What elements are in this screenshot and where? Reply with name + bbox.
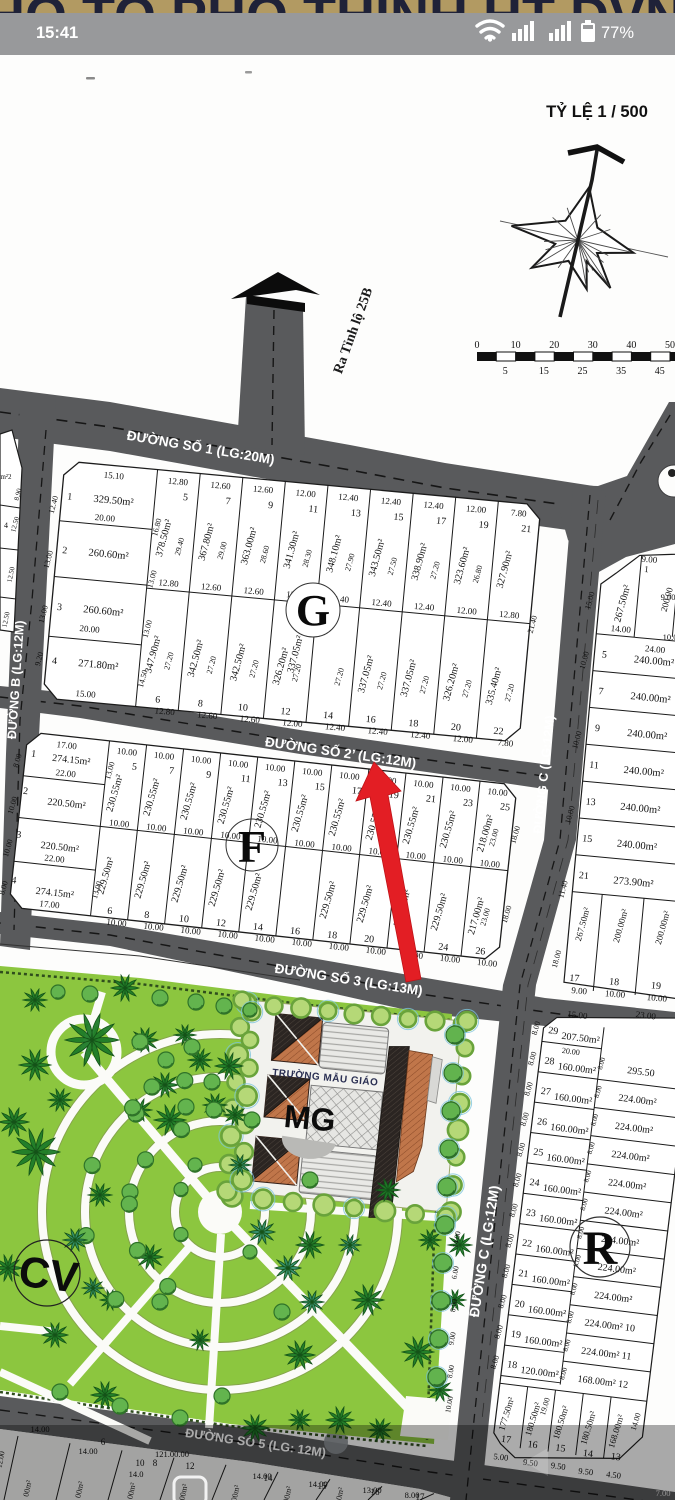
svg-text:21: 21 <box>425 793 436 805</box>
svg-text:12.80: 12.80 <box>158 577 180 589</box>
svg-text:12.60: 12.60 <box>197 709 219 721</box>
svg-text:3: 3 <box>56 602 62 613</box>
svg-text:13: 13 <box>585 796 596 808</box>
svg-text:12.40: 12.40 <box>380 495 402 507</box>
svg-text:12.60: 12.60 <box>253 484 275 496</box>
svg-text:23: 23 <box>462 797 473 809</box>
svg-text:18: 18 <box>507 1359 518 1371</box>
svg-text:26: 26 <box>475 946 486 958</box>
svg-text:12.40: 12.40 <box>338 491 360 503</box>
svg-text:12.00: 12.00 <box>466 503 488 515</box>
svg-text:10.0: 10.0 <box>663 632 675 642</box>
svg-text:20: 20 <box>514 1298 525 1310</box>
svg-text:7.80: 7.80 <box>510 507 527 518</box>
svg-text:16: 16 <box>289 925 300 937</box>
svg-text:12.00: 12.00 <box>295 487 317 499</box>
svg-text:12.40: 12.40 <box>371 597 393 609</box>
svg-text:12.60: 12.60 <box>201 581 223 593</box>
svg-text:6: 6 <box>155 694 161 705</box>
svg-text:10: 10 <box>511 340 521 351</box>
svg-text:12.60: 12.60 <box>239 713 261 725</box>
svg-text:10.00: 10.00 <box>646 992 668 1004</box>
svg-text:20: 20 <box>450 722 461 734</box>
svg-text:11: 11 <box>589 760 600 772</box>
svg-text:15:41: 15:41 <box>36 24 78 42</box>
svg-text:12.00: 12.00 <box>452 733 474 745</box>
svg-text:11: 11 <box>240 773 251 785</box>
svg-text:12: 12 <box>280 706 291 718</box>
svg-text:4: 4 <box>51 656 57 667</box>
svg-text:9.00: 9.00 <box>661 592 675 602</box>
svg-text:4: 4 <box>4 521 8 530</box>
svg-text:21: 21 <box>578 870 589 882</box>
svg-text:17: 17 <box>569 973 580 985</box>
svg-text:25: 25 <box>499 801 510 813</box>
svg-text:15: 15 <box>582 833 593 845</box>
svg-text:5: 5 <box>183 492 189 503</box>
svg-text:22: 22 <box>521 1238 532 1250</box>
svg-text:12.80: 12.80 <box>167 476 189 488</box>
svg-text:20: 20 <box>549 340 559 351</box>
svg-text:12.00: 12.00 <box>282 717 304 729</box>
svg-text:19: 19 <box>650 980 661 992</box>
svg-text:24: 24 <box>529 1177 540 1189</box>
svg-text:2: 2 <box>62 545 68 556</box>
svg-text:9.00: 9.00 <box>571 985 588 996</box>
svg-text:14.00: 14.00 <box>610 623 632 635</box>
svg-text:CV: CV <box>16 1248 81 1303</box>
svg-text:7: 7 <box>225 496 231 507</box>
svg-text:18: 18 <box>408 718 419 730</box>
svg-text:25: 25 <box>578 366 588 377</box>
svg-text:12.40: 12.40 <box>423 499 445 511</box>
svg-text:13: 13 <box>277 777 288 789</box>
svg-text:G: G <box>296 586 330 635</box>
svg-text:5: 5 <box>601 649 607 660</box>
svg-text:18: 18 <box>327 930 338 942</box>
svg-text:12.40: 12.40 <box>367 725 389 737</box>
svg-text:28: 28 <box>544 1056 555 1068</box>
svg-text:27: 27 <box>540 1086 551 1098</box>
svg-text:11: 11 <box>308 504 319 516</box>
svg-text:19: 19 <box>510 1329 521 1341</box>
svg-text:17: 17 <box>436 516 447 528</box>
svg-text:25: 25 <box>533 1147 544 1159</box>
svg-text:77%: 77% <box>601 24 634 42</box>
svg-text:15.10: 15.10 <box>103 470 125 482</box>
svg-text:13: 13 <box>350 508 361 520</box>
svg-text:30: 30 <box>588 340 598 351</box>
svg-text:18: 18 <box>609 976 620 988</box>
svg-text:24: 24 <box>438 942 449 954</box>
svg-text:21: 21 <box>521 523 532 535</box>
svg-text:9: 9 <box>595 723 601 734</box>
svg-text:12.40: 12.40 <box>325 721 347 733</box>
svg-text:29: 29 <box>548 1025 559 1037</box>
svg-text:10: 10 <box>237 702 248 714</box>
svg-text:7.80: 7.80 <box>497 737 514 748</box>
svg-text:12.60: 12.60 <box>210 480 232 492</box>
svg-text:F: F <box>238 821 266 872</box>
svg-text:45: 45 <box>655 366 665 377</box>
svg-text:16: 16 <box>365 714 376 726</box>
svg-text:15: 15 <box>539 366 549 377</box>
svg-text:9.00: 9.00 <box>641 554 658 565</box>
svg-text:12.40: 12.40 <box>410 729 432 741</box>
svg-text:20: 20 <box>364 934 375 946</box>
svg-text:15: 15 <box>314 781 325 793</box>
svg-text:9: 9 <box>268 500 274 511</box>
svg-text:8: 8 <box>197 698 203 709</box>
svg-text:26: 26 <box>536 1116 547 1128</box>
svg-text:1: 1 <box>644 564 649 574</box>
svg-text:12.40: 12.40 <box>414 601 436 613</box>
svg-text:R: R <box>583 1222 619 1275</box>
svg-text:12.60: 12.60 <box>243 585 265 597</box>
svg-text:19: 19 <box>478 520 489 532</box>
svg-text:5: 5 <box>503 366 508 377</box>
svg-text:14: 14 <box>252 921 263 933</box>
svg-text:12: 12 <box>215 917 226 929</box>
svg-text:50: 50 <box>665 340 675 351</box>
svg-text:23: 23 <box>525 1207 536 1219</box>
svg-text:15.00: 15.00 <box>75 688 97 700</box>
svg-text:12.00: 12.00 <box>456 605 478 617</box>
svg-text:15: 15 <box>393 512 404 524</box>
svg-text:7: 7 <box>598 686 604 697</box>
svg-text:24.00: 24.00 <box>645 643 667 655</box>
svg-text:10: 10 <box>178 913 189 925</box>
svg-text:0: 0 <box>475 340 480 351</box>
svg-text:1: 1 <box>67 491 73 502</box>
svg-text:20.00: 20.00 <box>94 512 116 524</box>
svg-text:12.80: 12.80 <box>499 609 521 621</box>
svg-text:35: 35 <box>616 366 626 377</box>
svg-text:21: 21 <box>518 1268 529 1280</box>
svg-text:14: 14 <box>323 710 334 722</box>
svg-text:MG: MG <box>282 1098 337 1139</box>
svg-text:12.80: 12.80 <box>154 705 176 717</box>
svg-text:10.00: 10.00 <box>605 988 627 1000</box>
svg-text:TỶ LỆ 1 / 500: TỶ LỆ 1 / 500 <box>546 102 648 121</box>
svg-text:20.00: 20.00 <box>79 623 101 635</box>
svg-text:22: 22 <box>493 726 504 738</box>
svg-text:40: 40 <box>626 340 636 351</box>
svg-text:m²2: m²2 <box>0 473 12 481</box>
